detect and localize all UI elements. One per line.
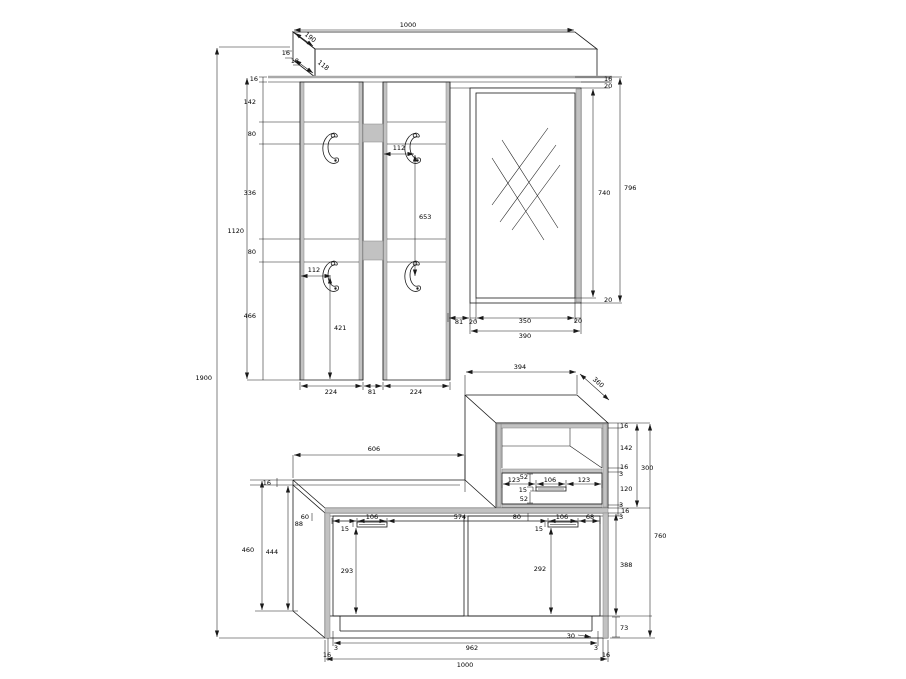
dim-drawer-123b: 123 [578, 476, 590, 484]
dim-bench-side388: 388 [620, 561, 632, 569]
dim-mirror-top20: 20 [604, 82, 612, 90]
dim-bench-width1000: 1000 [457, 661, 474, 669]
dim-panel-height: 1120 [227, 227, 244, 235]
dim-hook-span: 653 [419, 213, 431, 221]
dim-bench-inner444: 444 [266, 548, 278, 556]
dim-mirror-edge20b: 20 [574, 317, 582, 325]
dim-shelf-width: 1000 [400, 21, 417, 29]
dim-cabinet-depth: 360 [591, 375, 606, 389]
dim-panel-lower: 421 [334, 324, 346, 332]
dim-total-height: 1900 [195, 374, 212, 382]
dim-hook-offset-right: 112 [393, 144, 405, 152]
hook-top-right [405, 133, 421, 163]
dim-door-left293: 293 [341, 567, 353, 575]
dim-mirror-outer-height: 796 [624, 184, 636, 192]
dim-drawer-123a: 123 [508, 476, 520, 484]
dim-door-68: 68 [586, 513, 594, 521]
dim-mirror-height: 740 [598, 189, 610, 197]
dim-left-16: 16 [250, 75, 258, 83]
dim-mirror-glass350: 350 [519, 317, 531, 325]
dim-drawer-52a: 52 [520, 473, 528, 481]
dim-door-right292: 292 [534, 565, 546, 573]
hook-bottom-right [405, 261, 421, 291]
dim-drawer-handle15: 15 [519, 486, 527, 494]
furniture-technical-drawing: 1000 190 16 18 118 16 142 80 336 80 466 … [0, 0, 906, 679]
upper-cabinet [465, 395, 608, 508]
dim-benchtop-gap3: 3 [619, 513, 623, 521]
dim-drawer-52b: 52 [520, 495, 528, 503]
dim-left-80b: 80 [248, 248, 256, 256]
dim-cabinet-drawer120: 120 [620, 485, 632, 493]
dim-base-16a: 16 [323, 651, 331, 659]
dim-handle-span574: 574 [454, 513, 466, 521]
dim-shelf-t18: 18 [291, 57, 299, 65]
dim-door-88: 88 [295, 520, 303, 528]
dim-left-336: 336 [244, 189, 256, 197]
dim-mirror-gap81: 81 [455, 318, 463, 326]
dim-mirror-bottom20: 20 [604, 296, 612, 304]
coat-hooks [323, 133, 421, 291]
dim-bench-top606: 606 [368, 445, 380, 453]
dim-panel-gap: 81 [368, 388, 376, 396]
dim-handle-left15: 15 [341, 525, 349, 533]
dim-door-80: 80 [513, 513, 521, 521]
dim-hook-offset-left: 112 [308, 266, 320, 274]
dim-panel-width-a: 224 [325, 388, 337, 396]
dim-panel-width-b: 224 [410, 388, 422, 396]
dim-bench-height460: 460 [242, 546, 254, 554]
dim-handle-right106: 106 [556, 513, 568, 521]
dim-cabinet-top16: 16 [620, 422, 628, 430]
dim-bench-base962: 962 [466, 644, 478, 652]
dim-base-3a: 3 [334, 644, 338, 652]
dim-cabinet-gap3: 3 [619, 470, 623, 478]
dim-handle-right15: 15 [535, 525, 543, 533]
dim-shelf-t16: 16 [282, 49, 290, 57]
dim-shelf-fascia: 118 [316, 58, 331, 72]
dim-cabinet-height: 300 [641, 464, 653, 472]
dim-left-466: 466 [244, 312, 256, 320]
dim-plinth-73: 73 [620, 624, 628, 632]
dim-handle-left106: 106 [366, 513, 378, 521]
dim-bench-top16: 16 [263, 479, 271, 487]
dim-mirror-edge20a: 20 [469, 318, 477, 326]
dim-base-3b: 3 [594, 644, 598, 652]
dim-plinth-recess30: 30 [567, 632, 575, 640]
dim-mirror-board390: 390 [519, 332, 531, 340]
dim-cabinet-width: 394 [514, 363, 526, 371]
dim-cabinet-142: 142 [620, 444, 632, 452]
drawing-canvas: 1000 190 16 18 118 16 142 80 336 80 466 … [0, 0, 906, 679]
wall-panels [300, 82, 450, 380]
dim-left-80a: 80 [248, 130, 256, 138]
dim-left-142: 142 [244, 98, 256, 106]
mirror [470, 88, 581, 303]
dim-right-total760: 760 [654, 532, 666, 540]
dim-drawer-handle106: 106 [544, 476, 556, 484]
hook-top-left [323, 133, 339, 163]
dim-base-16b: 16 [602, 651, 610, 659]
